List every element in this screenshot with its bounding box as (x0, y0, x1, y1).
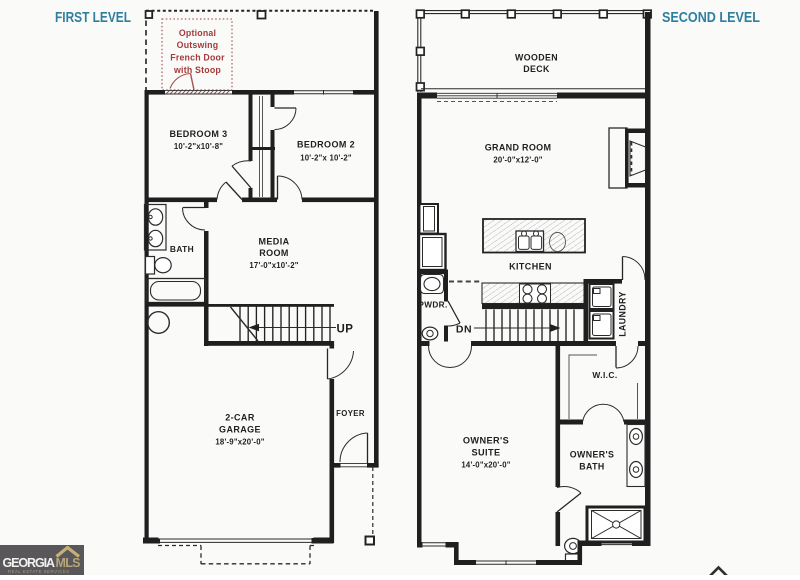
svg-text:UP: UP (337, 324, 354, 336)
svg-text:20'-0"x12'-0": 20'-0"x12'-0" (493, 156, 542, 165)
svg-text:DN: DN (456, 324, 472, 336)
svg-text:2-CAR: 2-CAR (225, 413, 255, 423)
svg-text:10'-2"x10'-8": 10'-2"x10'-8" (174, 142, 223, 151)
svg-text:14'-0"x20'-0": 14'-0"x20'-0" (461, 461, 510, 470)
svg-text:BEDROOM 2: BEDROOM 2 (297, 140, 355, 150)
svg-text:17'-0"x10'-2": 17'-0"x10'-2" (249, 261, 298, 270)
svg-text:KITCHEN: KITCHEN (509, 262, 552, 272)
svg-text:FIRST LEVEL: FIRST LEVEL (55, 10, 131, 26)
svg-text:WOODEN: WOODEN (515, 53, 558, 63)
svg-text:BATH: BATH (170, 244, 194, 254)
svg-text:GARAGE: GARAGE (219, 425, 261, 435)
svg-text:FOYER: FOYER (336, 409, 365, 418)
svg-text:REAL ESTATE SERVICES: REAL ESTATE SERVICES (8, 569, 70, 574)
svg-text:W.I.C.: W.I.C. (592, 370, 617, 380)
svg-text:ROOM: ROOM (259, 248, 289, 258)
svg-text:Outswing: Outswing (177, 40, 219, 50)
svg-text:DECK: DECK (523, 64, 550, 74)
svg-text:OWNER'S: OWNER'S (570, 450, 614, 460)
svg-text:with Stoop: with Stoop (173, 65, 221, 75)
svg-text:SECOND LEVEL: SECOND LEVEL (662, 10, 760, 26)
svg-text:French Door: French Door (170, 53, 225, 63)
svg-text:OWNER'S: OWNER'S (463, 436, 509, 446)
svg-text:PWDR.: PWDR. (418, 301, 447, 310)
svg-text:Optional: Optional (179, 28, 216, 38)
svg-text:LAUNDRY: LAUNDRY (618, 291, 628, 336)
svg-text:10'-2"x 10'-2": 10'-2"x 10'-2" (300, 154, 352, 163)
svg-text:SUITE: SUITE (471, 448, 500, 458)
svg-text:GRAND ROOM: GRAND ROOM (485, 143, 552, 153)
svg-text:18'-9"x20'-0": 18'-9"x20'-0" (215, 438, 264, 447)
svg-text:MEDIA: MEDIA (259, 237, 290, 247)
svg-text:BATH: BATH (579, 462, 604, 472)
svg-text:BEDROOM 3: BEDROOM 3 (169, 129, 227, 139)
